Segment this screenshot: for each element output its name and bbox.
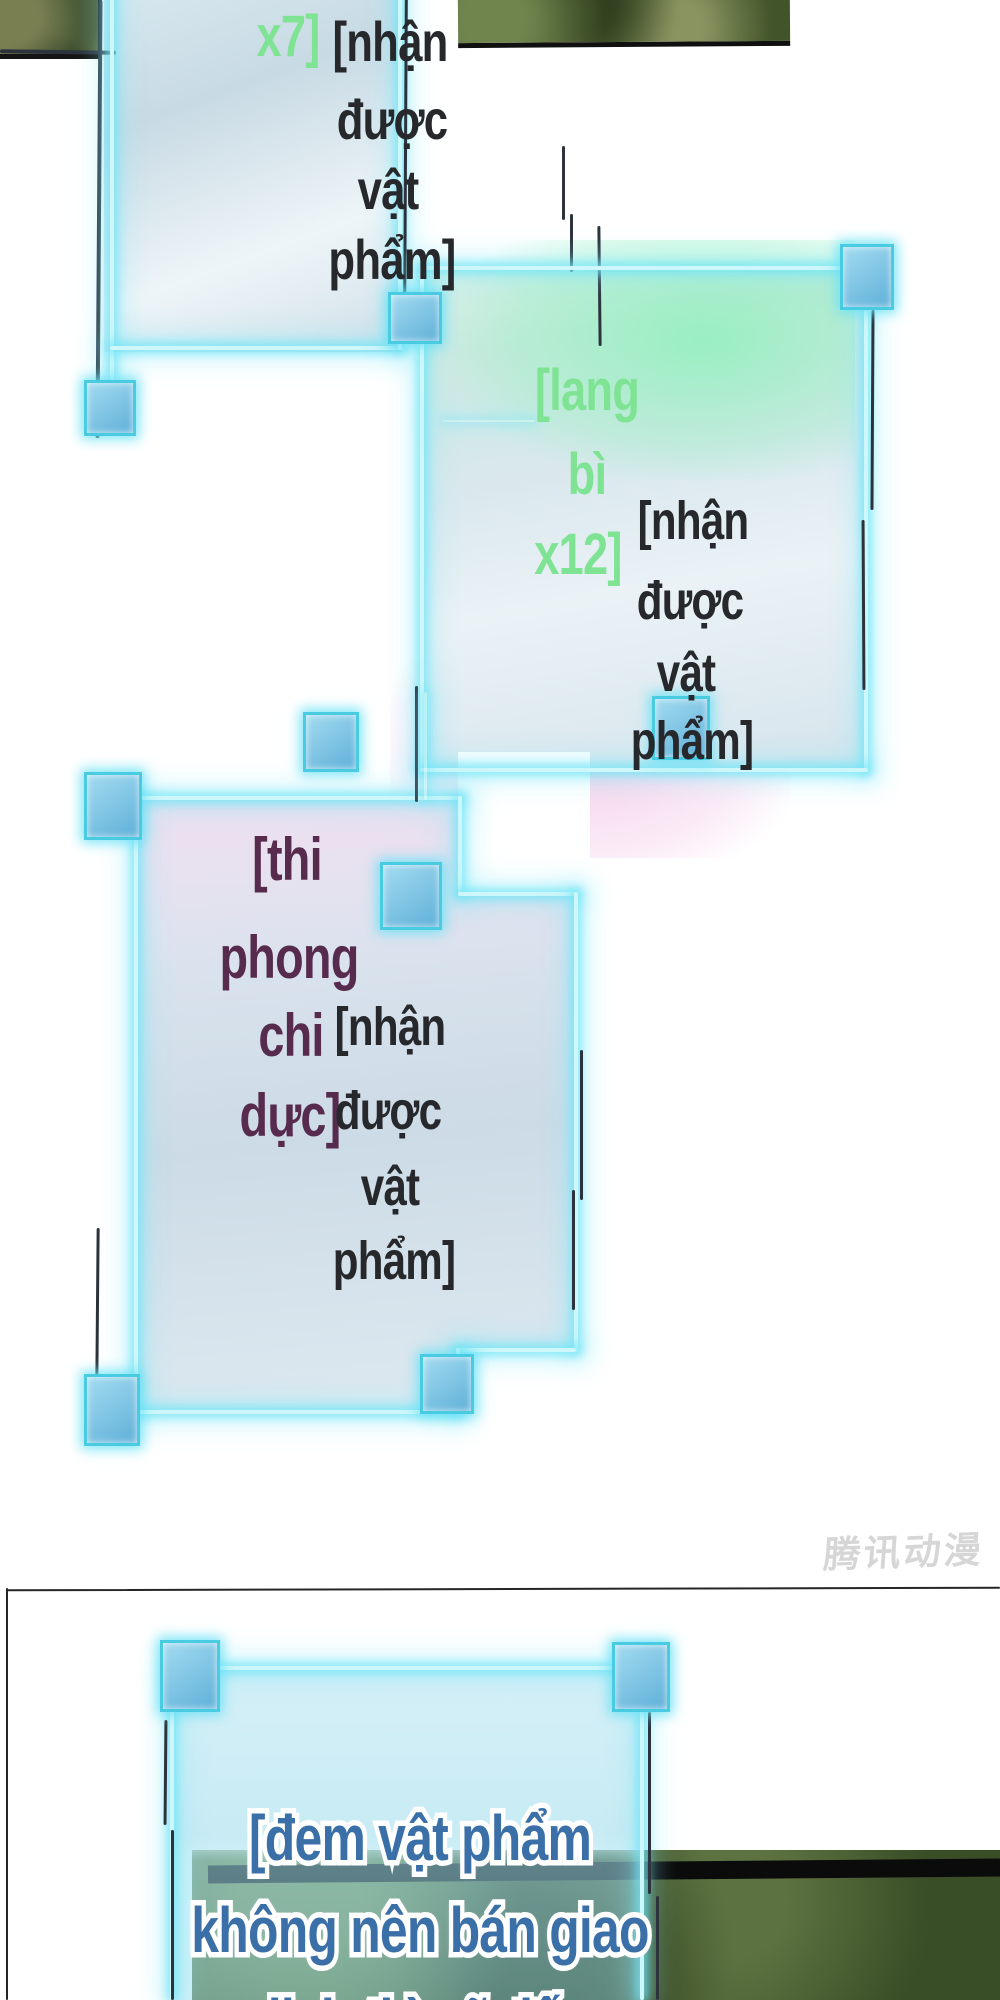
sketch-line	[171, 1830, 174, 2000]
sketch-line	[415, 686, 418, 802]
received-text-line: vật	[657, 646, 716, 700]
received-text-line: [nhận	[335, 1000, 446, 1054]
received-text-line: được	[337, 92, 448, 148]
sketch-line	[95, 1228, 99, 1378]
glow-border-segment	[110, 346, 404, 350]
sketch-line	[648, 1712, 651, 1894]
corner-accent-square	[160, 1640, 220, 1712]
comic-page: x7] [nhận được vật phẩm] [lang bì x12] […	[0, 0, 1000, 2000]
notice-text-line: [đem vật phẩm[đem vật phẩm	[249, 1806, 591, 1870]
sketch-line	[870, 310, 874, 510]
received-text-line: vật	[358, 162, 419, 218]
corner-accent-square	[303, 712, 359, 772]
received-text-line: vật	[361, 1160, 420, 1214]
tencent-comics-watermark: 腾讯动漫	[822, 1519, 986, 1579]
corner-accent-square	[612, 1642, 670, 1712]
sketch-line	[580, 1050, 583, 1200]
corner-accent-square	[380, 862, 442, 930]
notice-text-line: không nên bán giaokhông nên bán giao	[191, 1898, 648, 1962]
glow-border-segment	[443, 420, 535, 422]
received-text-line: phẩm]	[333, 1234, 455, 1288]
glow-border-segment	[134, 796, 138, 1414]
item-name-line: [thi	[252, 830, 322, 890]
glow-border-segment	[458, 796, 462, 896]
sketch-line	[562, 146, 565, 220]
glow-border-segment	[134, 1410, 460, 1414]
glow-border-segment	[134, 796, 462, 800]
item-count-text: x7]	[256, 8, 319, 66]
received-text-line: phẩm]	[328, 232, 455, 288]
glow-border-segment	[110, 0, 114, 392]
item-name-line: x12]	[534, 526, 621, 584]
glow-border-segment	[420, 266, 868, 270]
corner-accent-square	[840, 244, 894, 310]
terrain-photo-texture	[458, 0, 790, 48]
received-text-line: được	[637, 574, 743, 628]
item-name-line: [lang	[535, 362, 639, 420]
received-text-line: [nhận	[638, 494, 749, 548]
corner-accent-square	[84, 1374, 140, 1446]
panel-step-notch	[458, 1350, 580, 1420]
glow-border-segment	[864, 266, 868, 772]
item-name-line: phong	[219, 928, 358, 988]
sketch-line	[570, 214, 573, 272]
corner-accent-square	[388, 292, 442, 344]
panel-frame-border	[6, 1587, 1000, 1592]
corner-accent-square	[84, 380, 136, 436]
glow-border-segment	[424, 692, 427, 800]
received-text-line: phẩm]	[631, 714, 753, 768]
received-text-line: [nhận	[333, 14, 448, 70]
terrain-photo-strip	[458, 0, 790, 48]
glow-border-segment	[458, 1348, 576, 1352]
sketch-line	[95, 0, 102, 438]
corner-accent-square	[420, 1354, 474, 1414]
received-text-line: được	[335, 1084, 441, 1138]
corner-accent-square	[84, 772, 142, 840]
sketch-line	[656, 1896, 659, 2000]
sketch-line	[164, 1720, 168, 1825]
panel-frame-border	[6, 1588, 8, 2000]
panel-step-notch	[458, 752, 590, 894]
item-name-line: bì	[568, 446, 607, 504]
item-name-line: dực]	[240, 1086, 341, 1146]
notice-text-line: dịch thì sẽ đếndịch thì sẽ đến	[251, 1990, 589, 2000]
glow-border-segment	[458, 892, 578, 896]
sketch-line	[572, 1190, 575, 1310]
glow-border-segment	[174, 1666, 644, 1670]
item-name-line: chi	[258, 1006, 323, 1066]
sketch-line	[597, 226, 601, 346]
